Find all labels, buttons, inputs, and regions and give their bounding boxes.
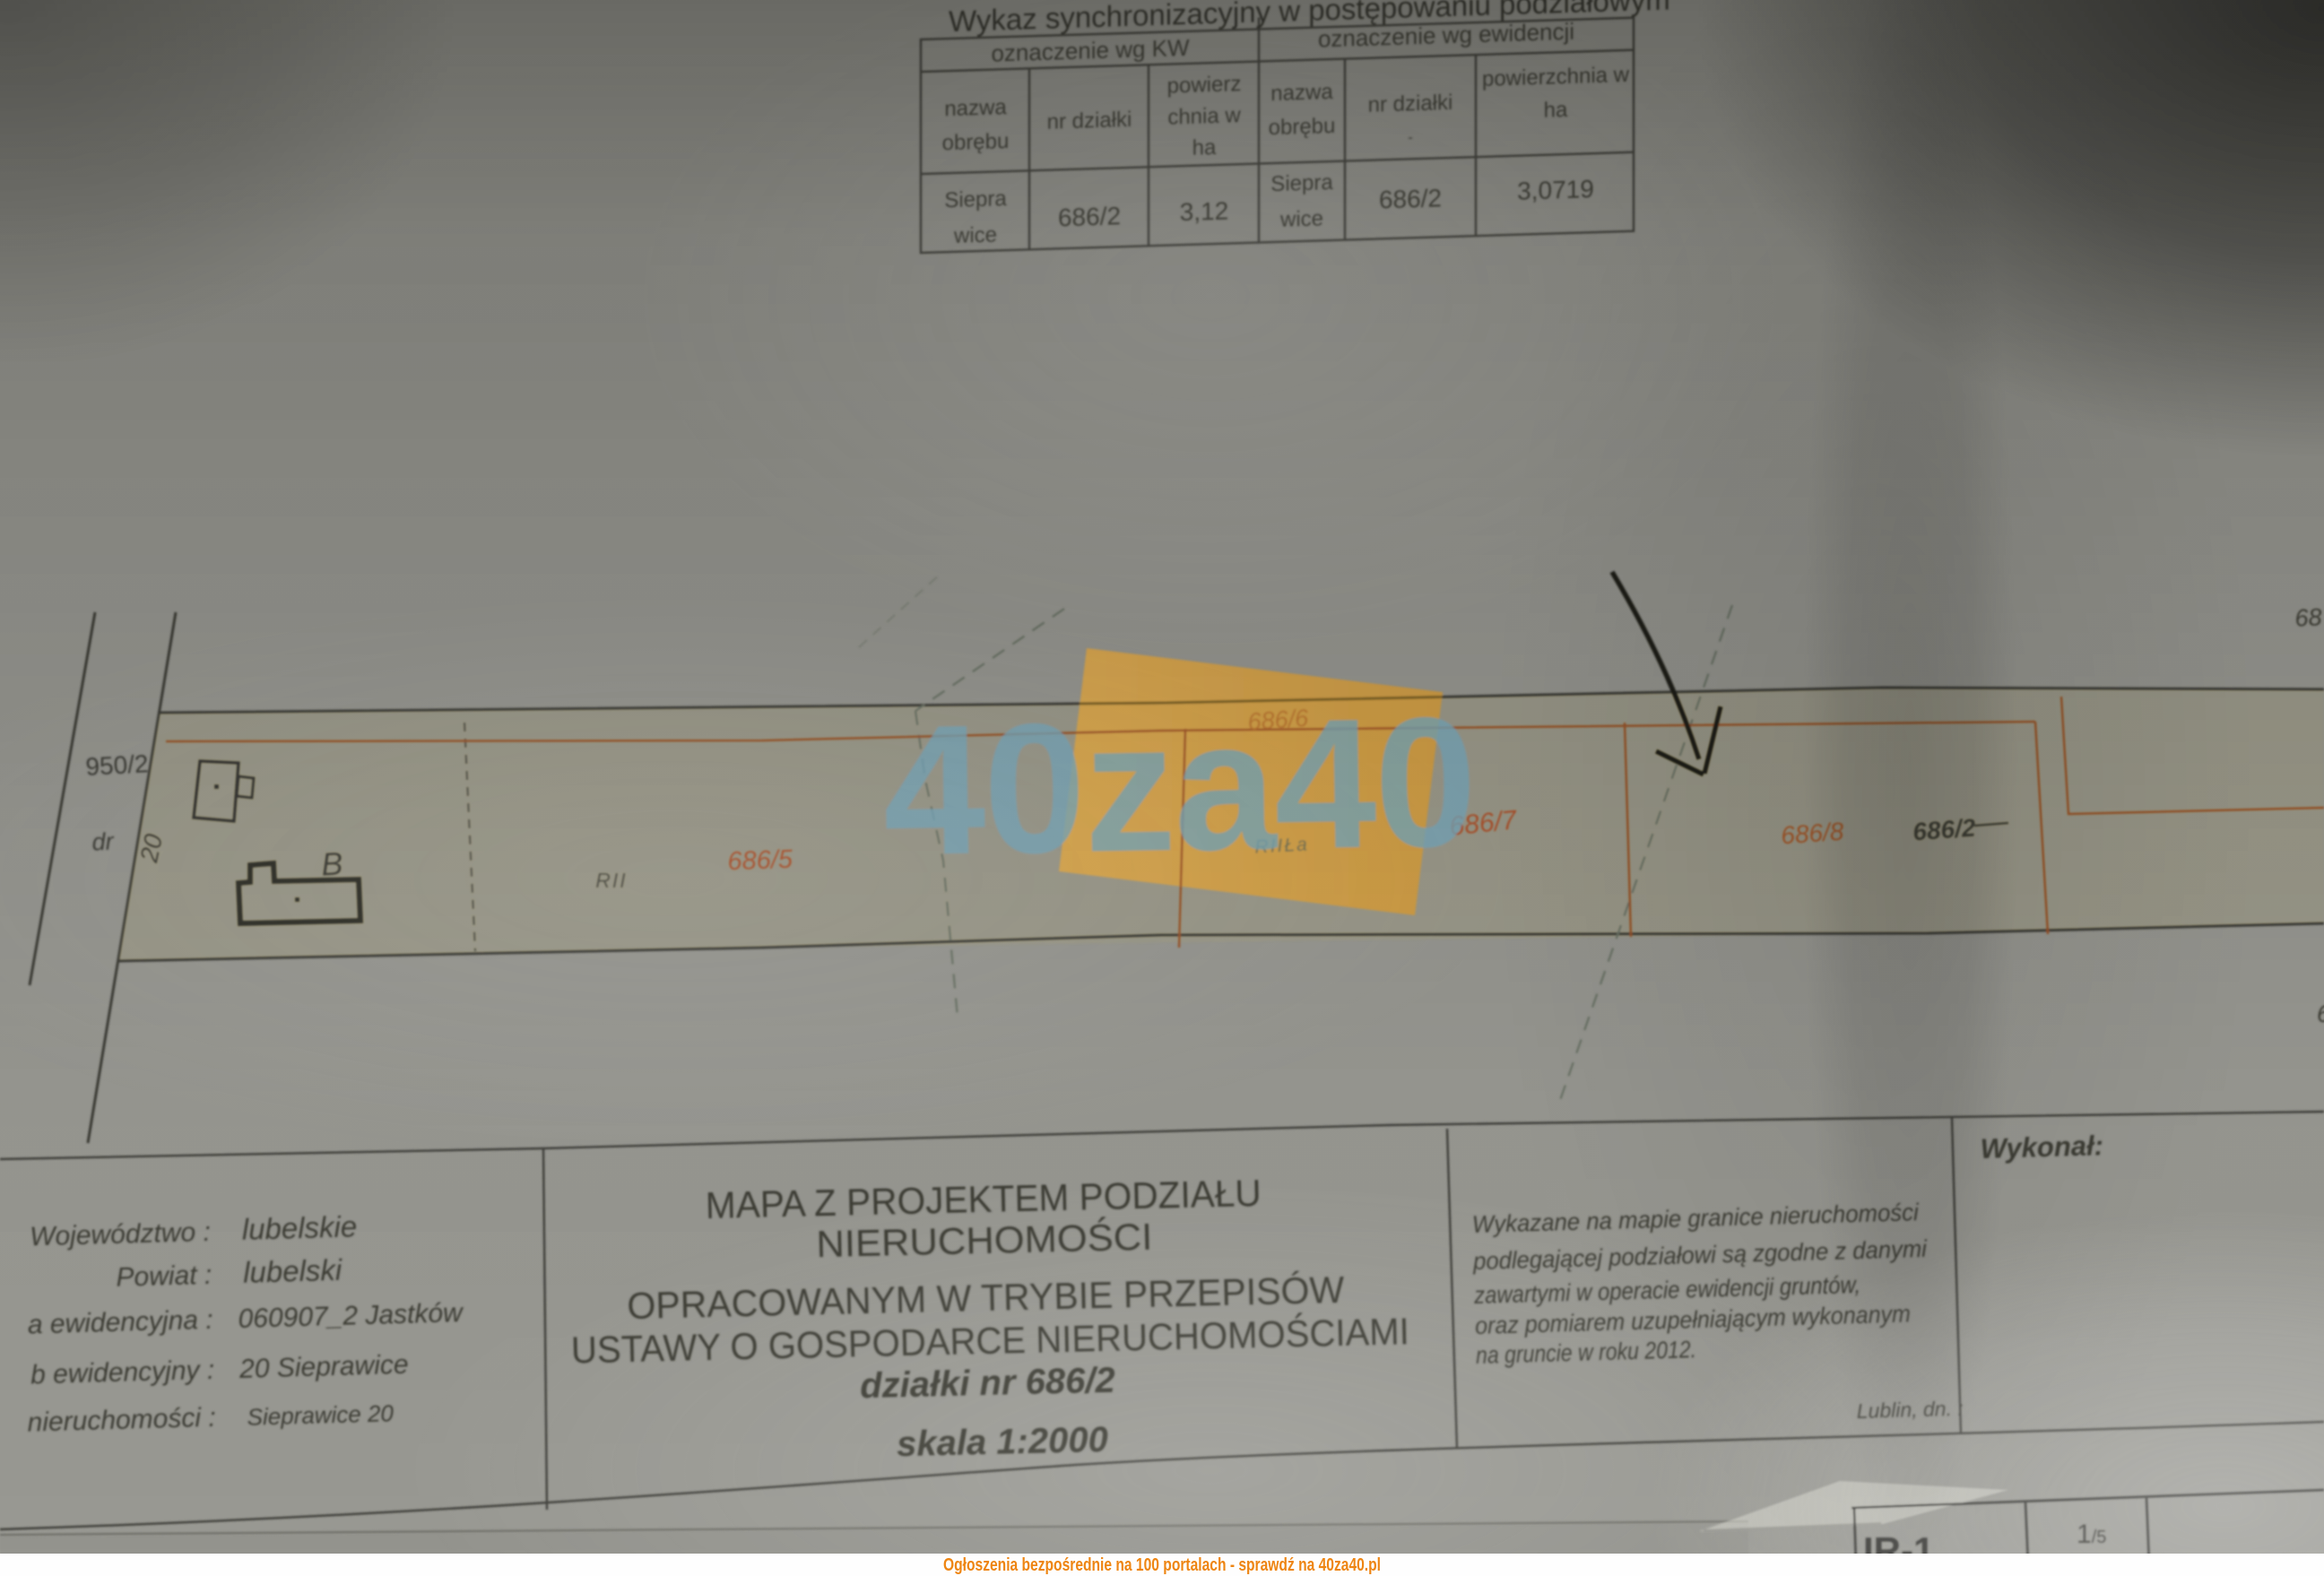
svg-text:Ogłoszenia bezpośrednie na 100: Ogłoszenia bezpośrednie na 100 portalach…: [943, 1555, 1381, 1575]
